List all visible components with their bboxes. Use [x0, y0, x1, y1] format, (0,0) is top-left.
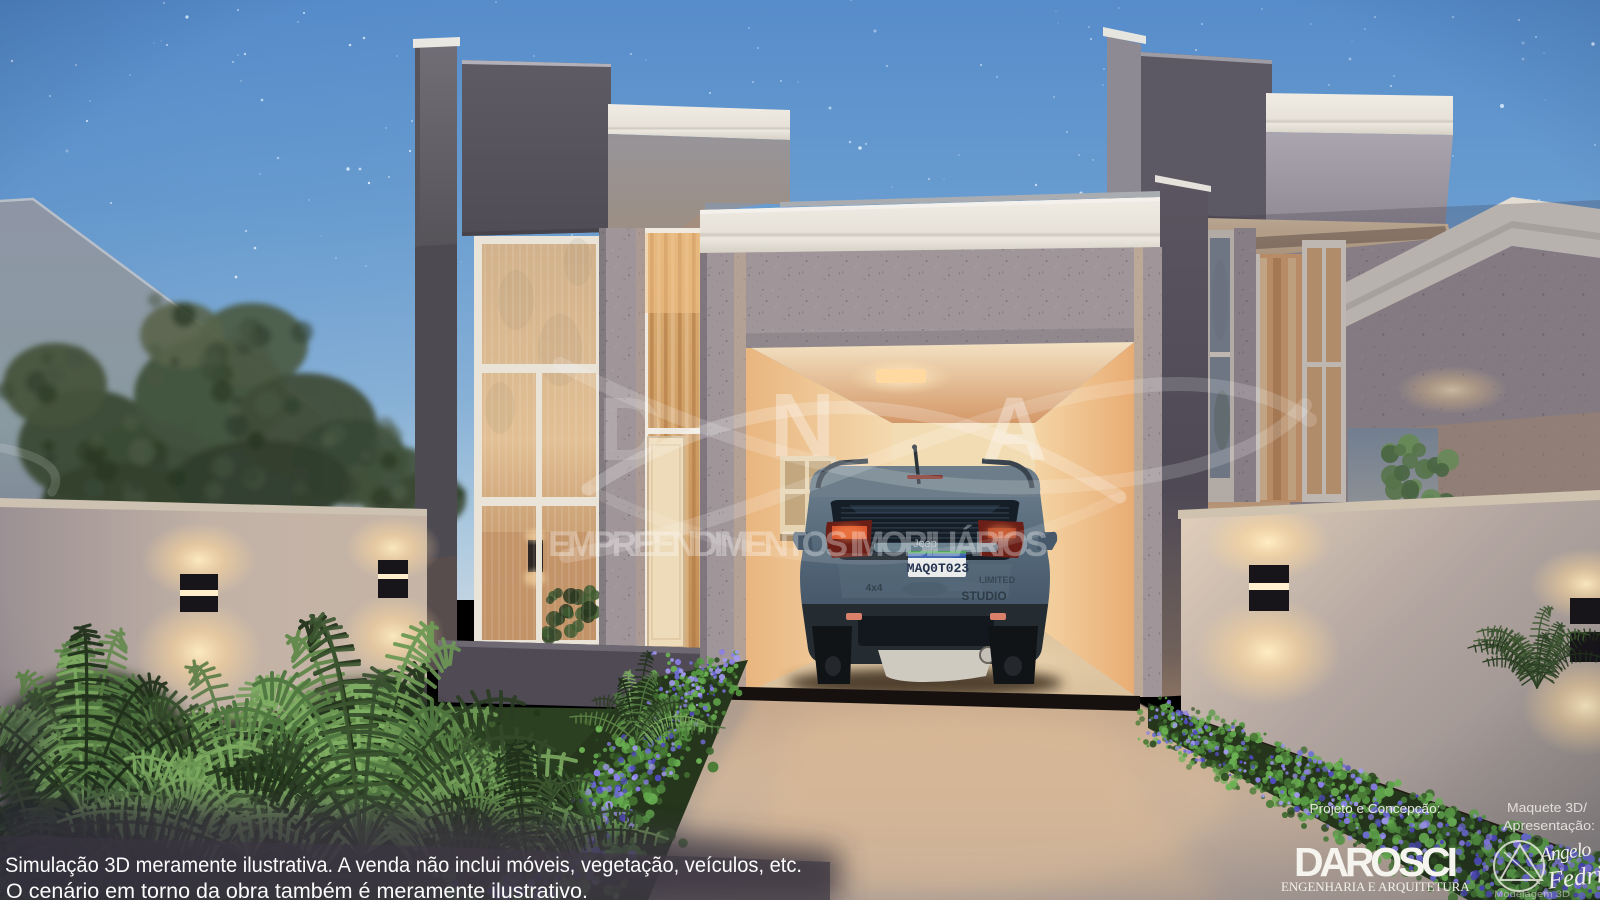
svg-text:Apresentação:: Apresentação: — [1503, 819, 1595, 833]
svg-text:ENGENHARIA E ARQUITETURA: ENGENHARIA E ARQUITETURA — [1281, 879, 1471, 894]
svg-text:Projeto e Concepção:: Projeto e Concepção: — [1310, 802, 1441, 816]
svg-text:Modelagem 3D: Modelagem 3D — [1494, 889, 1571, 899]
svg-text:O cenário em torno da obra tam: O cenário em torno da obra também é mera… — [6, 879, 588, 900]
svg-text:Maquete 3D/: Maquete 3D/ — [1507, 801, 1588, 815]
svg-text:Simulação 3D meramente ilustra: Simulação 3D meramente ilustrativa. A ve… — [5, 853, 802, 877]
